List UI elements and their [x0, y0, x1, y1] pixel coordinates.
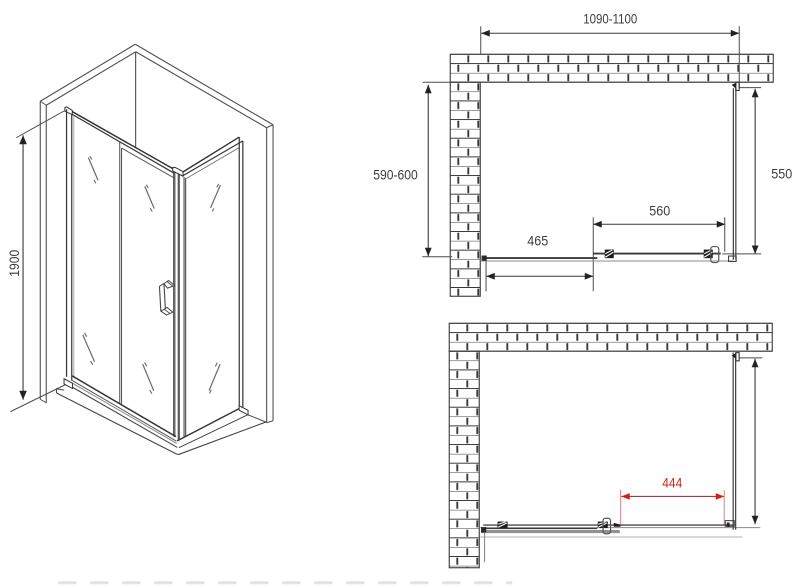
svg-text:1900: 1900 — [7, 250, 22, 277]
svg-text:550: 550 — [771, 165, 792, 181]
svg-text:560: 560 — [649, 202, 670, 218]
svg-text:1090-1100: 1090-1100 — [583, 10, 637, 26]
svg-text:444: 444 — [662, 475, 682, 490]
svg-text:465: 465 — [527, 232, 548, 248]
svg-text:590-600: 590-600 — [373, 166, 418, 182]
